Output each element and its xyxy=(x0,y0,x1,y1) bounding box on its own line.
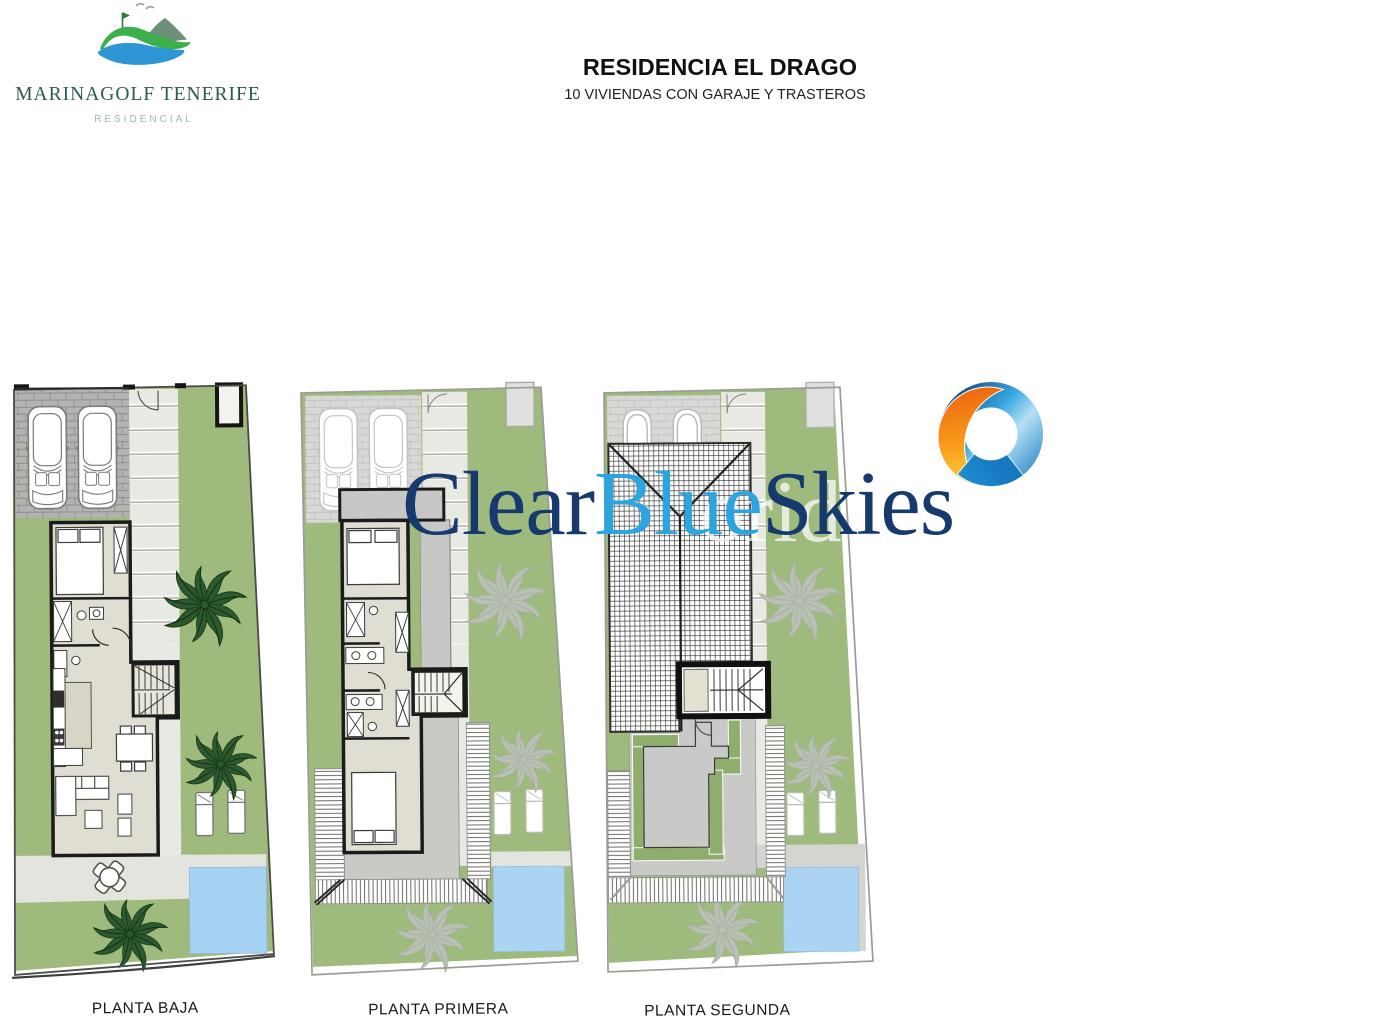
svg-text:PLANTA PRIMERA: PLANTA PRIMERA xyxy=(368,1001,508,1019)
svg-text:PLANTA SEGUNDA: PLANTA SEGUNDA xyxy=(644,1002,791,1020)
svg-text:PLANTA BAJA: PLANTA BAJA xyxy=(92,1000,199,1018)
